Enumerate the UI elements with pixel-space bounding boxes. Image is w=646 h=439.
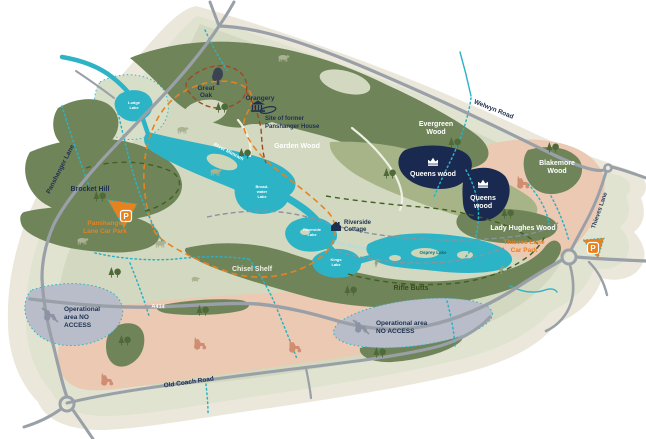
label-garden-wood: Garden Wood (274, 143, 320, 150)
label-queens-wood-b2: wood (473, 203, 492, 210)
label-operational-left-3: ACCESS (64, 322, 92, 329)
label-kings-lake-2: Lake (331, 262, 341, 267)
parking-icon: P (588, 243, 599, 254)
osprey-island-3 (389, 255, 401, 261)
label-orangery: Orangery (246, 95, 275, 102)
label-lady-hughes: Lady Hughes Wood (490, 225, 555, 232)
label-rifle-butts: Rifle Butts (394, 285, 429, 292)
label-operational-left-2: area NO (64, 314, 89, 321)
label-osprey-lake: Osprey Lake (419, 250, 447, 255)
label-panshanger-cp-2: Lane Car Park (83, 228, 127, 235)
label-cottage-1: Riverside (344, 220, 372, 226)
label-great-oak-2: Oak (200, 92, 213, 99)
parking-letter: P (590, 244, 596, 253)
label-queens-wood-b1: Queens (470, 195, 496, 202)
label-chisel-shelf: Chisel Shelf (232, 266, 273, 273)
road-label-a414: A414 (151, 304, 165, 311)
label-blakemore-1: Blakemore (539, 160, 575, 167)
park-map: P P Panshanger Lane Welwyn Road Thieves … (0, 0, 646, 439)
label-former-house-2: Panshanger House (265, 124, 320, 130)
label-brocket-hill: Brocket Hill (71, 186, 110, 193)
label-blakemore-2: Wood (547, 168, 566, 175)
label-riverside-lake-2: Lake (307, 232, 317, 237)
label-panshanger-cp-1: Panshanger (87, 220, 125, 227)
label-operational-left-1: Operational (64, 306, 100, 313)
map-canvas: P P Panshanger Lane Welwyn Road Thieves … (0, 0, 646, 439)
label-broadwater-3: Lake (257, 194, 267, 199)
stream-northeast (460, 52, 471, 96)
label-evergreen-2: Wood (426, 129, 445, 136)
label-great-oak-1: Great (198, 85, 216, 92)
label-evergreen-1: Evergreen (419, 121, 453, 128)
label-queens-wood-a: Queens wood (410, 171, 456, 178)
label-operational-bottom-1: Operational area (376, 320, 428, 327)
label-lodge-lake-2: Lake (129, 105, 139, 110)
label-cottage-2: Cottage (344, 227, 367, 233)
label-operational-bottom-2: NO ACCESS (376, 328, 415, 335)
osprey-island-2 (457, 251, 473, 259)
label-thieves-cp-1: Thieves Lane (503, 239, 545, 246)
label-former-house-1: Site of former (265, 116, 305, 122)
label-thieves-cp-2: Car Park (511, 247, 538, 254)
